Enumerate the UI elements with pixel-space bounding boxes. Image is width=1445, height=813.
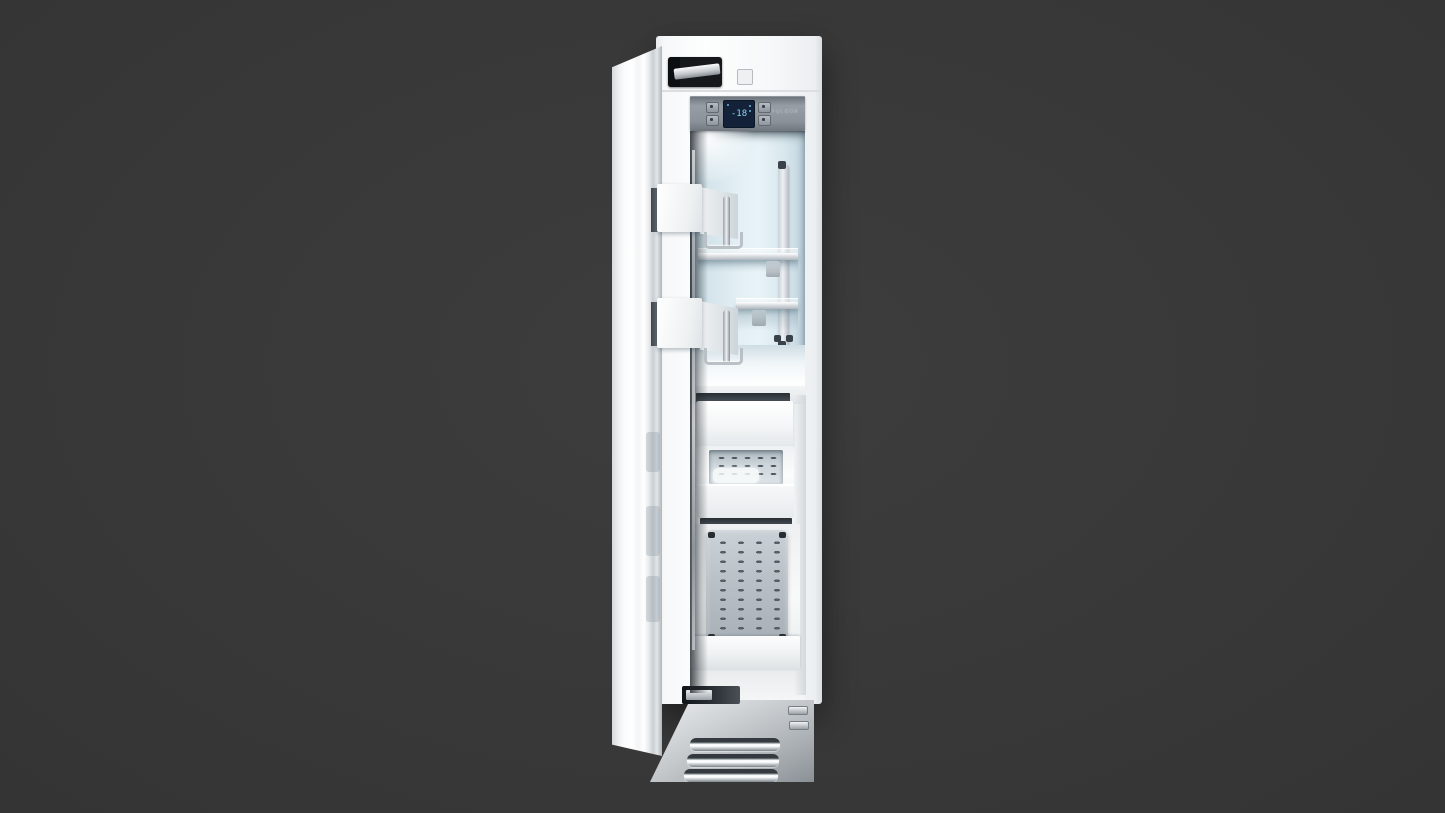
top-hinge [668, 57, 722, 87]
bin-wire-frame [704, 348, 743, 365]
basket-screw-icon [708, 532, 715, 538]
grille-clip [789, 721, 809, 730]
drawer-window [709, 450, 783, 484]
floor-screw-icon [774, 335, 781, 342]
door-light-switch [737, 69, 753, 85]
upper-freezer-drawer[interactable] [697, 401, 793, 447]
temp-down-button[interactable] [706, 115, 719, 126]
control-panel: -18 FULGOR [690, 96, 805, 131]
studio-background: -18 FULGOR [0, 0, 1445, 813]
hinge-arm-icon [674, 63, 721, 80]
grille-slat [687, 754, 779, 767]
toe-kick-grille [648, 700, 814, 782]
freezer-door[interactable] [612, 46, 662, 756]
grille-clip [788, 706, 808, 715]
door-bin-side [700, 301, 738, 355]
bin-wire-frame [704, 232, 743, 249]
perforated-basket-plate [706, 530, 788, 642]
glass-shelf-trim [698, 253, 798, 260]
power-button[interactable] [758, 115, 771, 126]
door-bin[interactable] [657, 298, 702, 348]
temp-up-button[interactable] [706, 102, 719, 113]
door-liner-pad [646, 432, 660, 472]
drawer-lip [697, 484, 794, 486]
door-liner-pad [646, 506, 660, 556]
brand-logo: FULGOR [772, 109, 802, 115]
glass-shelf-trim [736, 302, 798, 309]
grille-slat [684, 769, 778, 782]
ice-tray [713, 468, 759, 483]
temperature-display: -18 [723, 100, 755, 128]
door-liner-pad [646, 576, 660, 622]
ice-maker-drawer[interactable] [697, 446, 794, 518]
rail-screw-icon [778, 161, 786, 169]
alarm-button[interactable] [758, 102, 771, 113]
shelf-shadow [698, 260, 798, 272]
shelf-shadow [736, 309, 798, 331]
basket-screw-icon [779, 532, 786, 538]
perforation-pattern [714, 538, 780, 634]
grille-slat [690, 738, 780, 751]
temperature-value: -18 [731, 109, 747, 119]
pull-out-basket[interactable] [694, 524, 800, 670]
door-bin[interactable] [657, 184, 702, 232]
basket-front [694, 636, 800, 670]
floor-screw-icon [786, 335, 793, 342]
cabinet-seam [660, 90, 820, 92]
